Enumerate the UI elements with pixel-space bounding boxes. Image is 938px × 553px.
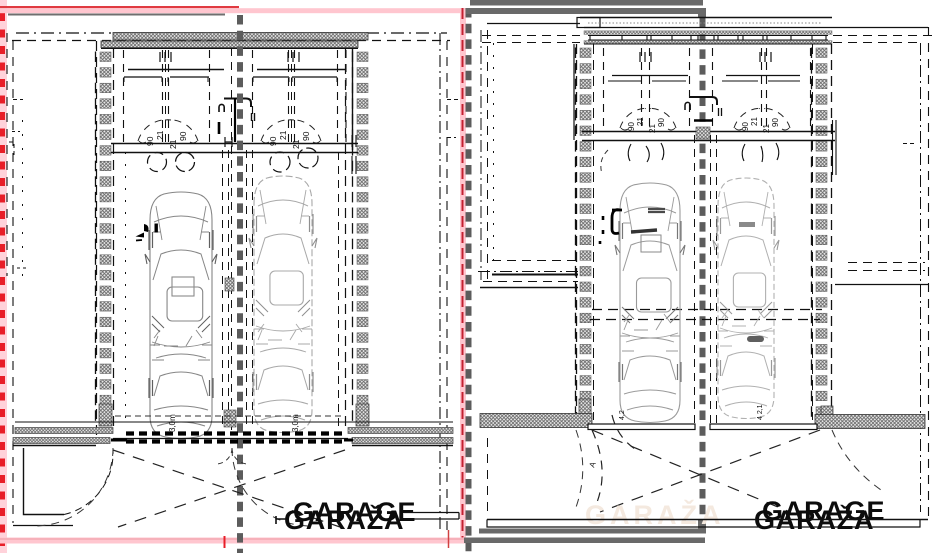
- svg-text:21: 21: [648, 124, 657, 133]
- svg-text:GARAŽA: GARAŽA: [585, 499, 725, 530]
- svg-text:90: 90: [268, 136, 278, 146]
- svg-text:4,2: 4,2: [619, 410, 626, 420]
- svg-text:4 2,1: 4 2,1: [757, 404, 764, 420]
- svg-text:90: 90: [178, 131, 188, 141]
- svg-text:21: 21: [762, 124, 771, 133]
- svg-text:21: 21: [750, 117, 759, 126]
- svg-text:21: 21: [278, 130, 288, 140]
- svg-text:21: 21: [155, 130, 165, 140]
- svg-text:3,0m: 3,0m: [168, 414, 177, 432]
- svg-text:90: 90: [145, 136, 155, 146]
- svg-text:21: 21: [636, 117, 645, 126]
- svg-text:90: 90: [627, 122, 636, 131]
- svg-text:90: 90: [657, 118, 666, 127]
- svg-text:90: 90: [741, 122, 750, 131]
- svg-text:GARAGE: GARAGE: [762, 496, 885, 526]
- svg-text:GARAGE: GARAGE: [293, 497, 416, 527]
- svg-text:3,0m: 3,0m: [291, 414, 300, 432]
- svg-text:90: 90: [771, 118, 780, 127]
- svg-text:90: 90: [301, 131, 311, 141]
